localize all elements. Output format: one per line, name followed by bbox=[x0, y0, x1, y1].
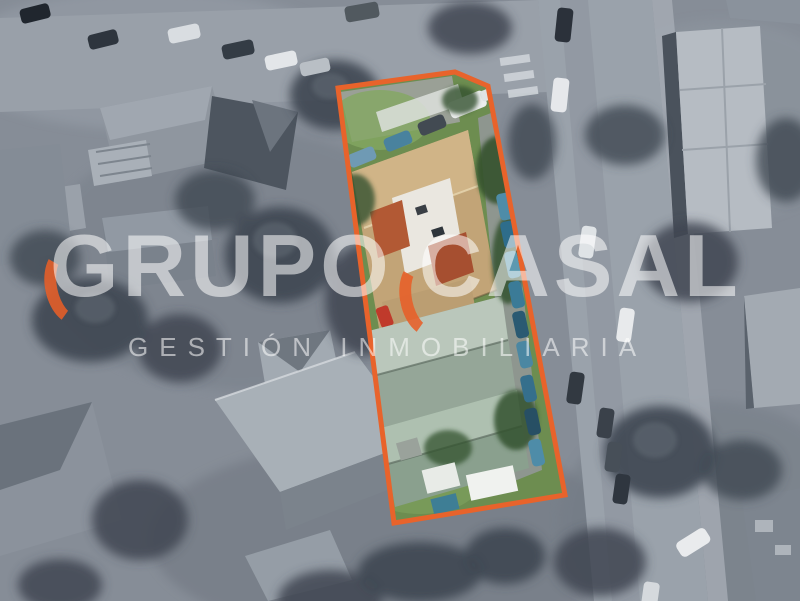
watermark-brand: GRUPOCASAL bbox=[50, 220, 742, 312]
aerial-listing-image: GRUPOCASAL GESTIÓN INMOBILIARIA bbox=[0, 0, 800, 601]
watermark-word-grupo: GRUPO bbox=[50, 216, 393, 315]
watermark-tagline: GESTIÓN INMOBILIARIA bbox=[128, 332, 647, 363]
watermark-word-casal: CASAL bbox=[419, 216, 742, 315]
